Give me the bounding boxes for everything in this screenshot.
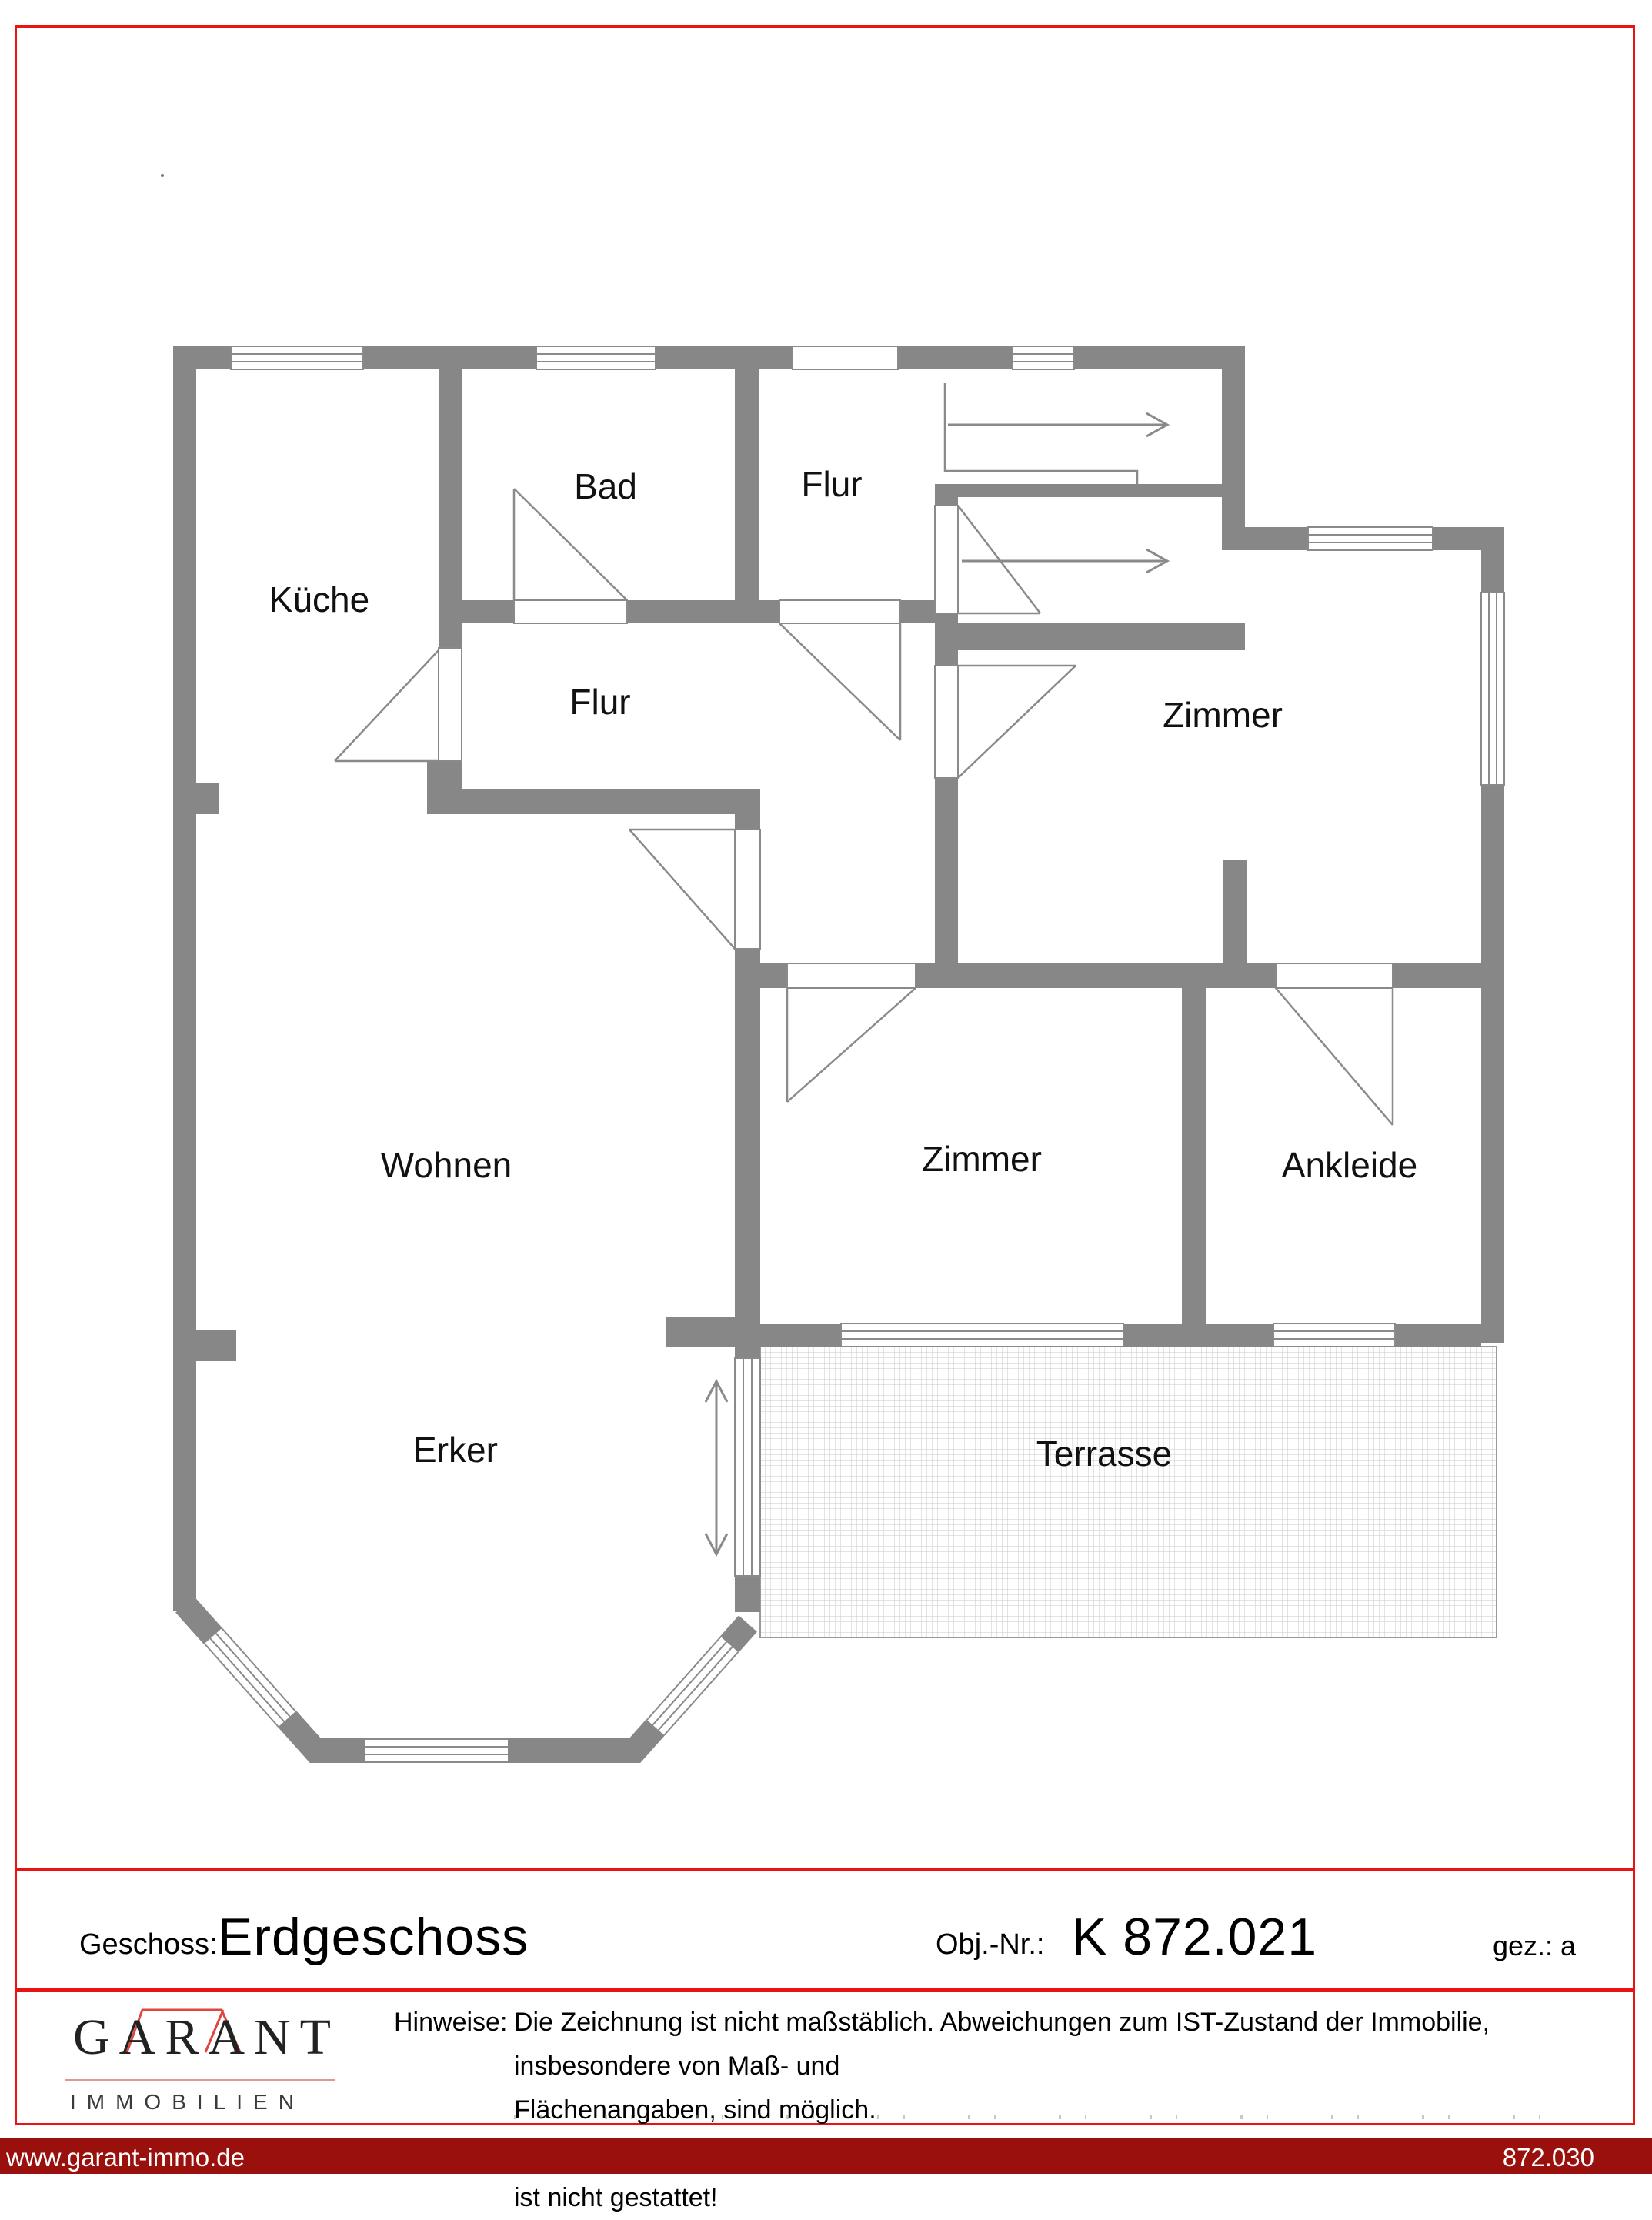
room-label-erker: Erker bbox=[413, 1430, 498, 1470]
disclaimer-line-1: Die Zeichnung ist nicht maßstäblich. Abw… bbox=[514, 2001, 1617, 2088]
footer-url: www.garant-immo.de bbox=[6, 2143, 245, 2172]
room-label-zimmer-unten: Zimmer bbox=[922, 1139, 1042, 1179]
drawn-by-label: gez.: bbox=[1493, 1930, 1553, 1962]
garant-logo: GARANT IMMOBILIEN bbox=[65, 1999, 342, 2122]
separator-line-top bbox=[15, 1868, 1635, 1871]
footer-plan-number: 872.030 bbox=[1503, 2143, 1594, 2172]
room-label-zimmer-oben: Zimmer bbox=[1163, 695, 1283, 735]
terrace-hatch bbox=[760, 1347, 1497, 1637]
logo-subtitle: IMMOBILIEN bbox=[70, 2090, 305, 2115]
room-label-wohnen: Wohnen bbox=[381, 1145, 512, 1185]
floorplan-sheet: { "plan": { "rooms": [ {"id": "kueche", … bbox=[0, 0, 1652, 2174]
drawn-by-value: a bbox=[1560, 1930, 1576, 1962]
disclaimer-label: Hinweise: bbox=[394, 2001, 514, 2088]
room-label-kueche: Küche bbox=[269, 579, 369, 619]
logo-rule bbox=[65, 2079, 335, 2081]
footer-bar: www.garant-immo.de 872.030 bbox=[0, 2138, 1652, 2174]
geschoss-value: Erdgeschoss bbox=[218, 1907, 529, 1967]
room-label-ankleide: Ankleide bbox=[1282, 1145, 1417, 1185]
clipped-text-marks bbox=[514, 2115, 1584, 2119]
object-number-label: Obj.-Nr.: bbox=[936, 1928, 1044, 1961]
room-label-bad: Bad bbox=[574, 466, 637, 506]
logo-wordmark: GARANT bbox=[73, 2008, 340, 2067]
room-label-terrasse: Terrasse bbox=[1036, 1434, 1172, 1474]
disclaimer-block: Hinweise: Die Zeichnung ist nicht maßstä… bbox=[394, 2001, 1617, 2220]
geschoss-label: Geschoss: bbox=[79, 1928, 218, 1961]
door-openings bbox=[439, 506, 1393, 988]
separator-line-bottom bbox=[15, 1988, 1635, 1992]
room-label-flur-mitte: Flur bbox=[569, 682, 630, 722]
floorplan-drawing: Küche Bad Flur Flur Zimmer Wohnen Zimmer… bbox=[0, 0, 1652, 1893]
room-label-flur-oben: Flur bbox=[801, 464, 862, 504]
stair-lines bbox=[945, 383, 1137, 484]
object-number-value: K 872.021 bbox=[1072, 1907, 1317, 1967]
disclaimer-line-2: Flächenangaben, sind möglich. bbox=[514, 2088, 876, 2132]
